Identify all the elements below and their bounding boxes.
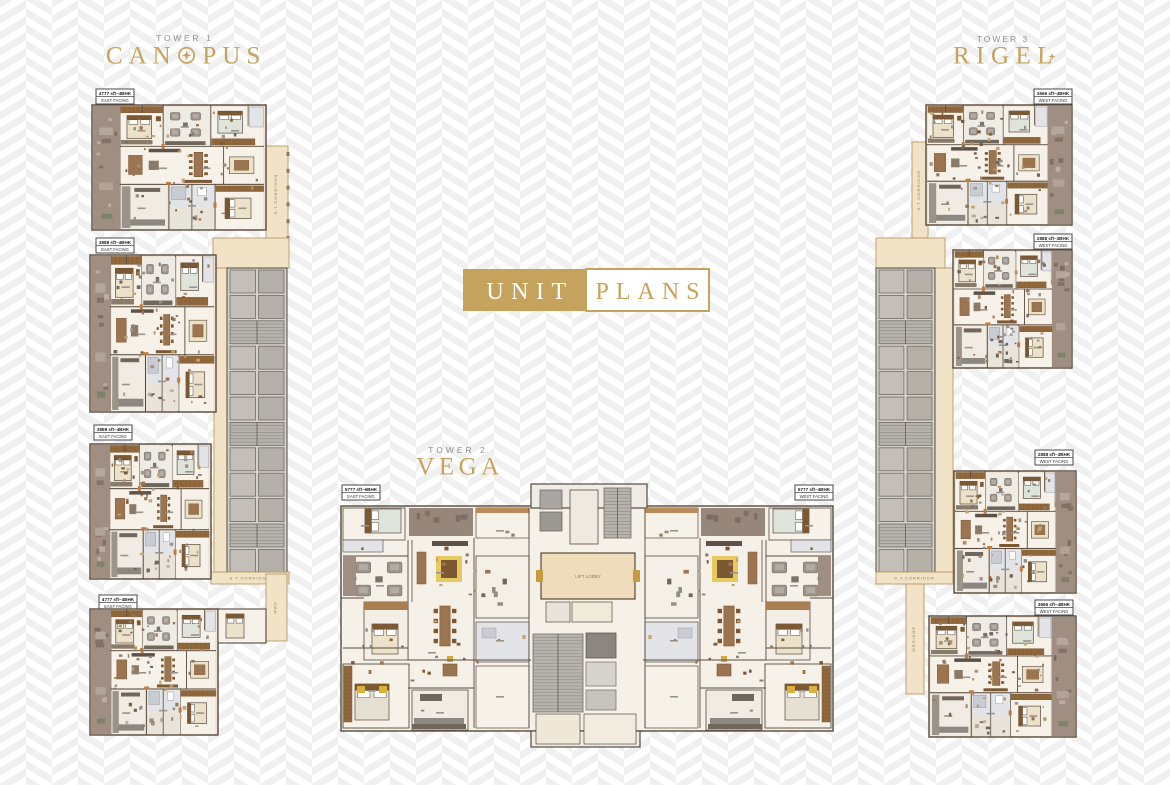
svg-text:3666 sft–4BHK: 3666 sft–4BHK [1037, 91, 1070, 96]
svg-text:EAST FACING: EAST FACING [101, 98, 129, 103]
svg-text:WEST FACING: WEST FACING [1040, 459, 1069, 464]
svg-text:S.T.CORRIDOR: S.T.CORRIDOR [273, 174, 278, 215]
svg-text:WEST FACING: WEST FACING [1039, 98, 1068, 103]
svg-text:TOWER 1: TOWER 1 [156, 33, 213, 43]
svg-text:WEST FACING: WEST FACING [1039, 243, 1068, 248]
svg-text:CAN: CAN [106, 43, 177, 70]
svg-text:PUS: PUS [202, 43, 266, 70]
svg-text:EAST FACING: EAST FACING [101, 247, 129, 252]
svg-text:S.T.CORRIDOR: S.T.CORRIDOR [916, 170, 921, 211]
svg-text:3888 sft–4BHK: 3888 sft–4BHK [97, 427, 130, 432]
svg-text:S.T.CORRIDOR: S.T.CORRIDOR [894, 576, 935, 581]
svg-text:WEST FACING: WEST FACING [1040, 609, 1069, 614]
svg-text:5777 sft–6BHK: 5777 sft–6BHK [345, 487, 378, 492]
svg-text:EAST FACING: EAST FACING [104, 604, 132, 609]
svg-text:2888 sft–3BHK: 2888 sft–3BHK [1037, 236, 1070, 241]
svg-text:3666 sft–4BHK: 3666 sft–4BHK [1038, 602, 1071, 607]
svg-text:EAST FACING: EAST FACING [347, 494, 375, 499]
svg-text:4777 sft–4BHK: 4777 sft–4BHK [99, 91, 132, 96]
svg-text:WRD: WRD [273, 601, 278, 614]
svg-text:4777 sft–4BHK: 4777 sft–4BHK [102, 597, 135, 602]
svg-text:UNIT: UNIT [486, 279, 573, 305]
svg-text:3888 sft–4BHK: 3888 sft–4BHK [99, 240, 132, 245]
svg-text:WEST FACING: WEST FACING [800, 494, 829, 499]
svg-text:S.T.CORRIDOR: S.T.CORRIDOR [230, 576, 271, 581]
svg-text:PLANS: PLANS [595, 279, 706, 305]
svg-text:VEGA: VEGA [416, 454, 503, 481]
svg-text:2888 sft–3BHK: 2888 sft–3BHK [1038, 452, 1071, 457]
svg-text:RIGEL: RIGEL [953, 43, 1059, 70]
svg-text:WRD/AMF: WRD/AMF [911, 626, 916, 652]
svg-text:LIFT LOBBY: LIFT LOBBY [575, 574, 600, 579]
svg-text:EAST FACING: EAST FACING [99, 434, 127, 439]
svg-text:5777 sft–4BHK: 5777 sft–4BHK [798, 487, 831, 492]
